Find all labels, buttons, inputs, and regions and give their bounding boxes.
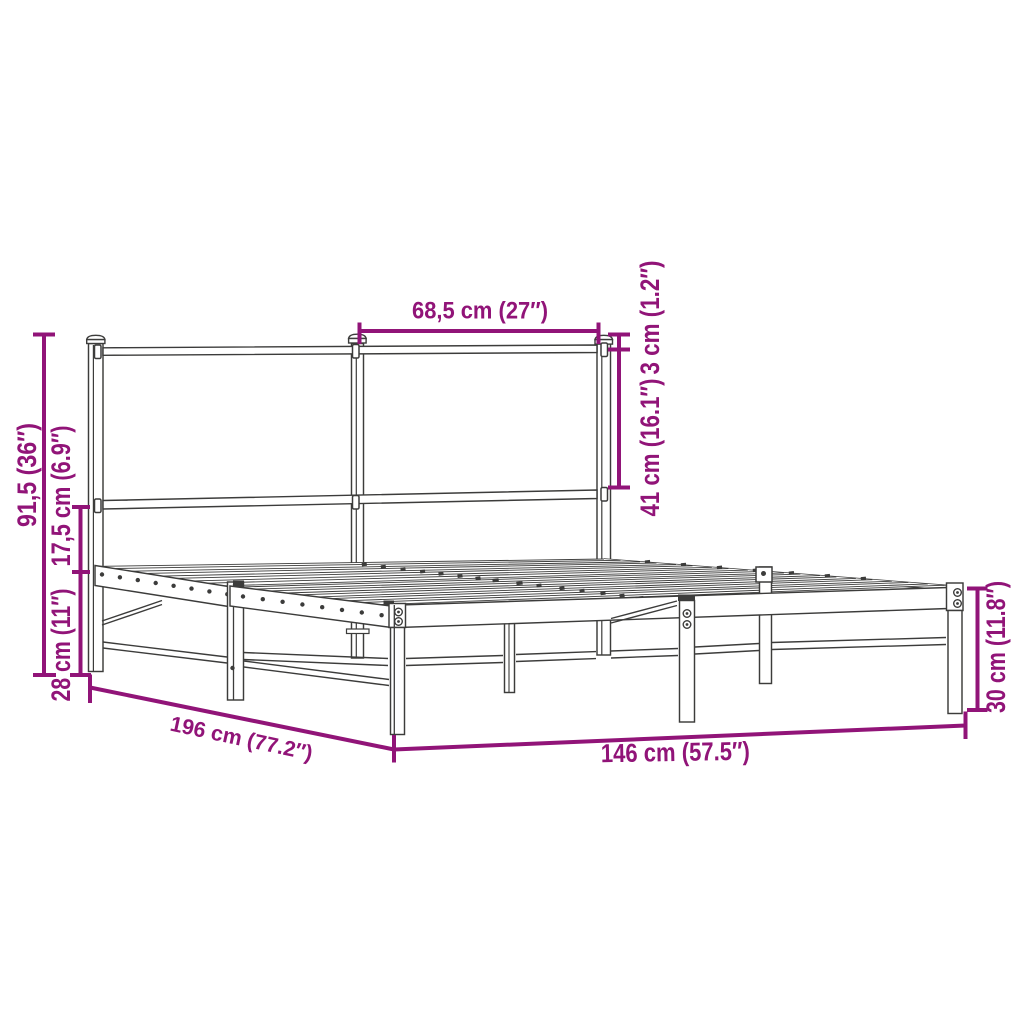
svg-text:30 cm (11.8″): 30 cm (11.8″): [981, 581, 1011, 713]
svg-text:68,5 cm (27″): 68,5 cm (27″): [412, 298, 548, 325]
svg-text:17,5 cm (6.9″): 17,5 cm (6.9″): [46, 426, 76, 567]
svg-text:3 cm (1.2″): 3 cm (1.2″): [635, 261, 665, 375]
svg-text:28 cm (11″): 28 cm (11″): [46, 589, 76, 702]
svg-text:41 cm (16.1″): 41 cm (16.1″): [635, 379, 665, 517]
svg-text:146 cm (57.5″): 146 cm (57.5″): [601, 736, 751, 769]
svg-text:91,5 (36″): 91,5 (36″): [12, 423, 42, 527]
